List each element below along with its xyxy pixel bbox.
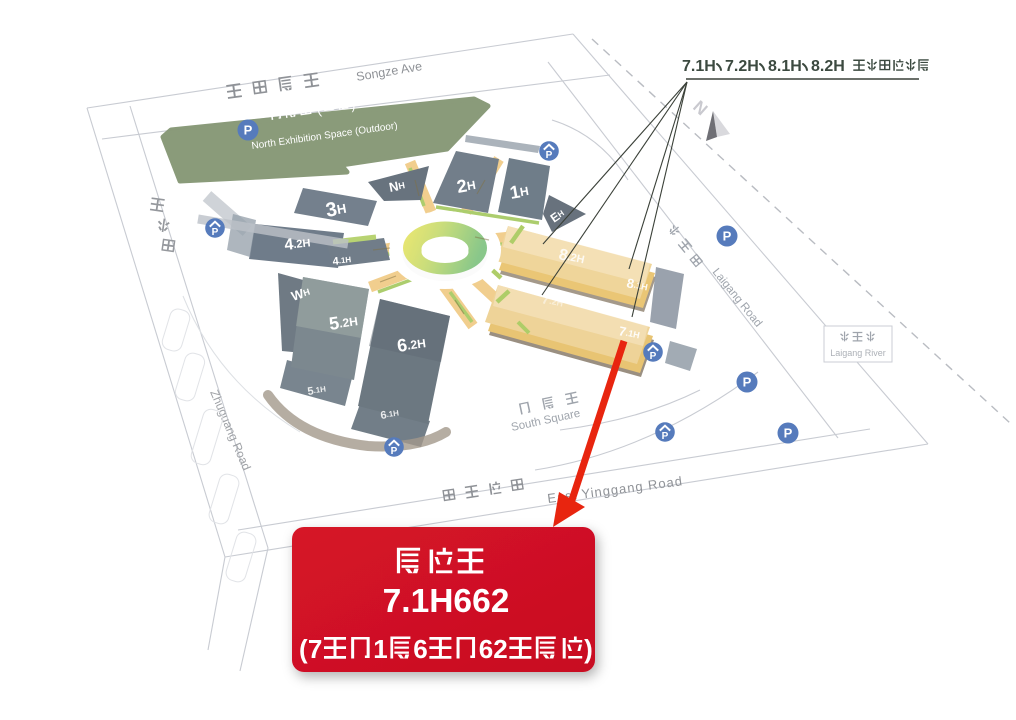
- svg-text:7: 7: [308, 634, 322, 664]
- svg-text:8.1H: 8.1H: [768, 58, 802, 75]
- svg-text:6: 6: [479, 634, 493, 664]
- svg-text:6: 6: [413, 634, 427, 664]
- svg-text:7.1H: 7.1H: [682, 58, 716, 75]
- svg-text:7.2H: 7.2H: [725, 58, 759, 75]
- svg-text:1: 1: [373, 634, 387, 664]
- svg-text:): ): [584, 634, 593, 664]
- svg-text:8.2H: 8.2H: [811, 58, 845, 75]
- svg-text:7.1H662: 7.1H662: [383, 583, 510, 620]
- svg-text:2: 2: [493, 634, 507, 664]
- svg-text:(: (: [299, 634, 308, 664]
